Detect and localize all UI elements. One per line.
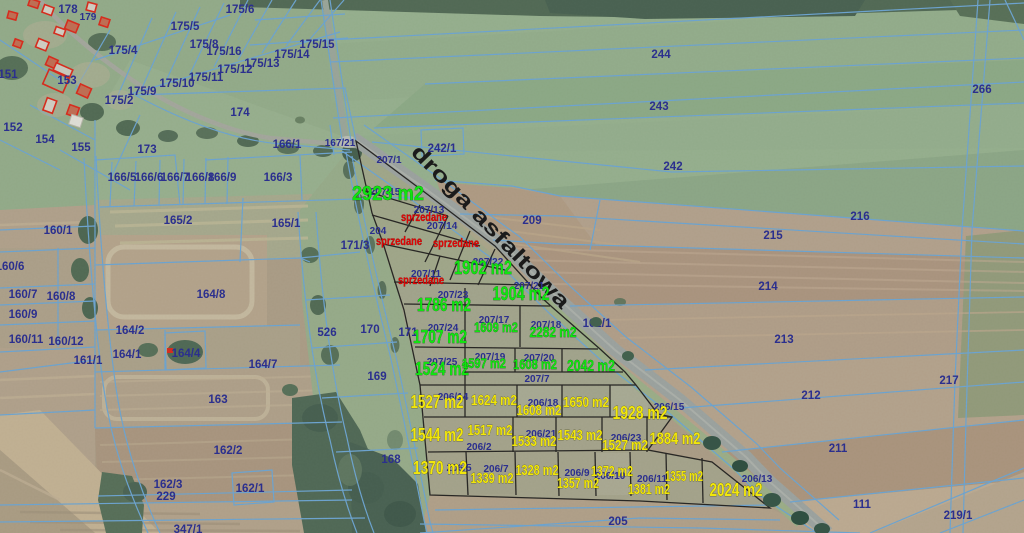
svg-text:154: 154 [35, 134, 55, 146]
svg-text:1707 m2: 1707 m2 [413, 327, 467, 347]
svg-text:1902 m2: 1902 m2 [454, 258, 512, 279]
svg-text:2923 m2: 2923 m2 [352, 183, 424, 205]
svg-text:164/1: 164/1 [113, 349, 142, 361]
svg-text:1597 m2: 1597 m2 [462, 355, 506, 371]
svg-text:217: 217 [939, 375, 958, 387]
svg-text:175/10: 175/10 [159, 78, 194, 90]
svg-text:1608 m2: 1608 m2 [517, 402, 562, 419]
svg-text:2042 m2: 2042 m2 [567, 358, 615, 375]
svg-text:1381 m2: 1381 m2 [628, 481, 670, 498]
svg-text:179: 179 [80, 12, 97, 23]
svg-text:162/3: 162/3 [154, 479, 183, 491]
svg-text:160/1: 160/1 [44, 225, 73, 237]
svg-text:171/3: 171/3 [341, 240, 370, 252]
svg-text:160/8: 160/8 [47, 291, 76, 303]
svg-text:173: 173 [137, 144, 156, 156]
svg-text:175/16: 175/16 [206, 46, 241, 58]
svg-text:229: 229 [156, 491, 175, 503]
svg-text:1608 m2: 1608 m2 [513, 356, 557, 372]
svg-text:165/2: 165/2 [164, 215, 193, 227]
svg-text:160/11: 160/11 [9, 334, 44, 346]
svg-text:244: 244 [651, 49, 671, 61]
svg-text:2024 m2: 2024 m2 [710, 480, 763, 500]
svg-text:111: 111 [853, 499, 872, 511]
svg-text:1527 m2: 1527 m2 [411, 392, 464, 412]
svg-text:1372 m2: 1372 m2 [591, 463, 633, 480]
svg-text:162/1: 162/1 [236, 483, 265, 495]
svg-text:sprzedane: sprzedane [401, 212, 447, 224]
svg-text:174: 174 [230, 107, 250, 119]
svg-text:526: 526 [317, 327, 336, 339]
svg-text:163: 163 [208, 394, 227, 406]
svg-text:178: 178 [58, 4, 78, 16]
svg-text:212: 212 [801, 390, 820, 402]
svg-text:2282 m2: 2282 m2 [530, 324, 577, 341]
svg-text:1517 m2: 1517 m2 [468, 422, 513, 439]
svg-text:1527 m2: 1527 m2 [602, 437, 648, 454]
svg-text:1544 m2: 1544 m2 [411, 425, 464, 445]
svg-text:1370 m2: 1370 m2 [413, 458, 467, 478]
svg-text:sprzedane: sprzedane [433, 238, 479, 250]
svg-text:1650 m2: 1650 m2 [563, 394, 609, 411]
svg-text:243: 243 [649, 101, 668, 113]
svg-text:213: 213 [774, 334, 793, 346]
svg-text:162/2: 162/2 [214, 445, 243, 457]
svg-text:242: 242 [663, 161, 682, 173]
svg-text:160/7: 160/7 [9, 289, 38, 301]
svg-text:166/6: 166/6 [135, 172, 164, 184]
svg-text:167/21: 167/21 [325, 138, 356, 149]
svg-text:164/7: 164/7 [249, 359, 278, 371]
svg-text:1524 m2: 1524 m2 [415, 359, 469, 379]
svg-text:sprzedane: sprzedane [376, 236, 422, 248]
svg-text:1786 m2: 1786 m2 [417, 295, 471, 315]
svg-text:164/2: 164/2 [116, 325, 145, 337]
svg-text:1884 m2: 1884 m2 [650, 429, 701, 448]
svg-text:166/1: 166/1 [273, 139, 302, 151]
svg-text:347/1: 347/1 [174, 524, 203, 533]
svg-text:1609 m2: 1609 m2 [474, 319, 518, 335]
svg-text:1543 m2: 1543 m2 [558, 427, 603, 444]
svg-text:1624 m2: 1624 m2 [471, 392, 517, 409]
svg-text:1328 m2: 1328 m2 [516, 462, 559, 479]
svg-text:166/9: 166/9 [208, 172, 237, 184]
svg-text:219/1: 219/1 [944, 510, 973, 522]
svg-text:1904 m2: 1904 m2 [493, 284, 550, 305]
svg-text:175/2: 175/2 [105, 95, 134, 107]
svg-text:175/4: 175/4 [109, 45, 138, 57]
svg-text:266: 266 [972, 84, 991, 96]
svg-text:168: 168 [381, 454, 401, 466]
svg-text:242/1: 242/1 [428, 143, 457, 155]
svg-text:164/8: 164/8 [197, 289, 226, 301]
svg-text:170: 170 [360, 324, 379, 336]
svg-text:166/3: 166/3 [264, 172, 293, 184]
svg-text:155: 155 [71, 142, 91, 154]
svg-text:160/6: 160/6 [0, 261, 24, 273]
svg-text:216: 216 [850, 211, 869, 223]
svg-text:160/12: 160/12 [48, 336, 83, 348]
svg-text:160/9: 160/9 [9, 309, 38, 321]
svg-text:169: 169 [367, 371, 386, 383]
svg-text:164/4: 164/4 [172, 348, 201, 360]
svg-text:175/5: 175/5 [171, 21, 200, 33]
svg-text:175/14: 175/14 [274, 49, 310, 61]
svg-text:166/5: 166/5 [108, 172, 137, 184]
svg-text:207/7: 207/7 [524, 374, 549, 385]
svg-text:205: 205 [608, 516, 628, 528]
svg-text:1928 m2: 1928 m2 [613, 403, 668, 423]
svg-text:215: 215 [763, 230, 783, 242]
svg-text:1355 m2: 1355 m2 [665, 468, 703, 485]
svg-text:1533 m2: 1533 m2 [512, 433, 557, 450]
svg-text:1339 m2: 1339 m2 [471, 470, 514, 487]
svg-text:165/1: 165/1 [272, 218, 301, 230]
svg-text:214: 214 [758, 281, 778, 293]
svg-text:161/1: 161/1 [74, 355, 103, 367]
svg-text:151: 151 [0, 69, 18, 81]
svg-text:207/1: 207/1 [376, 155, 401, 166]
svg-text:209: 209 [522, 215, 541, 227]
svg-text:153: 153 [57, 75, 76, 87]
svg-text:175/6: 175/6 [226, 4, 255, 16]
svg-text:211: 211 [829, 443, 848, 455]
svg-text:152: 152 [3, 122, 22, 134]
svg-text:206/2: 206/2 [466, 442, 491, 453]
svg-text:sprzedane: sprzedane [398, 275, 444, 287]
